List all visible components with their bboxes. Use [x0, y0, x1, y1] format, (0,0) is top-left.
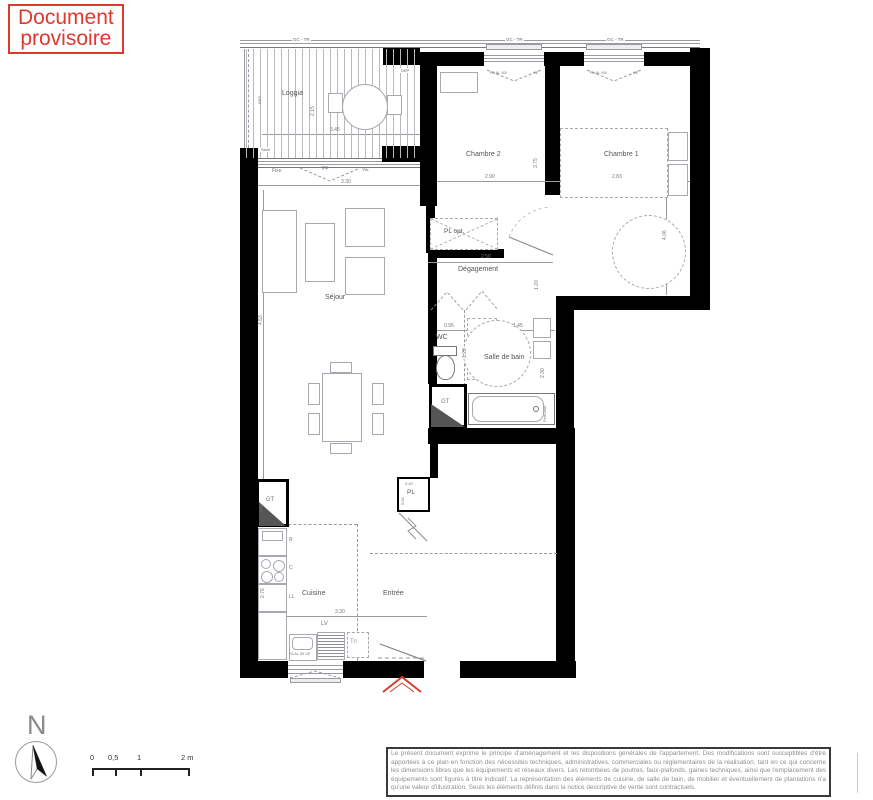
bay-pf-label: PF: [322, 166, 328, 172]
pare-bain-label: Pare-bain: [543, 406, 547, 422]
cooking-letter: C: [289, 565, 293, 571]
dim-pl-width: 0.40: [405, 481, 413, 486]
door-swing-arc: [509, 207, 551, 237]
scale-label-05: 0,5: [108, 753, 118, 762]
scale-tick: [140, 768, 142, 776]
fridge-letter: R: [289, 537, 293, 543]
dim-degagement-depth: 1.20: [534, 280, 540, 290]
dim-chambre2-depth: 3.75: [533, 158, 539, 168]
plan-linework: [0, 0, 873, 800]
dim-cuisine-width: 3.30: [335, 609, 345, 615]
compass-icon: [15, 741, 57, 783]
gt-hatch: [431, 404, 465, 427]
kitchen-window-label: FA AL 50 VE: [289, 652, 310, 656]
door-leaf-chambre1: [509, 237, 553, 255]
wc-door-swing: [431, 292, 463, 310]
railing-label: GC - TR: [606, 37, 625, 42]
gt-label: GT: [266, 497, 274, 503]
window-label-ve: VE: [533, 70, 538, 75]
gt-hatch: [259, 502, 286, 526]
dep-label: DEP: [400, 68, 410, 73]
dim-sdb-depth: 2.30: [540, 368, 546, 378]
door-leaf-pl: [399, 513, 427, 541]
room-label-degagement: Dégagement: [458, 266, 498, 273]
dim-loggia-depth: 2.15: [310, 106, 316, 116]
room-label-sejour: Séjour: [325, 294, 345, 301]
provisional-document-banner: Document provisoire: [8, 4, 124, 54]
window-label-ve: VE: [633, 70, 638, 75]
dim-gt-height: 0.80: [258, 504, 263, 512]
dim-wc-width: 0.95: [444, 323, 454, 329]
room-label-wc: WC: [436, 334, 448, 341]
disclaimer-text: Le présent document exprime le principe …: [386, 747, 831, 797]
railing-label: GC - TR: [505, 37, 524, 42]
railing-label: GC - TR: [292, 37, 311, 42]
banner-line1: Document: [18, 7, 114, 28]
scale-tick: [188, 768, 190, 776]
bep-label: BEP: [257, 96, 262, 104]
placard-opt-label: PL opt.: [444, 228, 464, 235]
tri-label: Tri: [350, 639, 357, 645]
dim-loggia-width: 3.45: [330, 127, 340, 133]
banner-line2: provisoire: [18, 28, 114, 49]
lv-label: LV: [321, 621, 328, 627]
seuil-label: Seuil: [260, 147, 271, 152]
room-label-sdb: Salle de bain: [484, 354, 524, 361]
entrance-marker-icon: [383, 677, 421, 692]
north-label: N: [27, 710, 47, 741]
room-label-cuisine: Cuisine: [302, 590, 325, 597]
room-label-entree: Entrée: [383, 590, 404, 597]
dim-sejour-depth: 4.53: [258, 315, 264, 325]
scale-label-0: 0: [90, 753, 94, 762]
pl-label: PL: [407, 489, 415, 496]
washer-letter: LL: [289, 594, 295, 600]
bay-swing: [300, 168, 360, 181]
scale-label-1: 1: [137, 753, 141, 762]
scale-tick: [92, 768, 94, 776]
floor-plan-sheet: Document provisoire GC - TR GC - TR GC -…: [0, 0, 873, 800]
bay-ve-label: VE: [362, 167, 369, 173]
kitchen-window-swing: [290, 671, 340, 678]
sdb-door-swing: [466, 291, 498, 310]
window-label: FA AL 50l: [490, 70, 507, 75]
dim-chambre2-width: 2.90: [485, 174, 495, 180]
dim-sdb-width: 1.45: [513, 323, 523, 329]
dim-pl-depth: 0.65: [400, 497, 405, 505]
room-label-chambre1: Chambre 1: [604, 151, 639, 158]
dim-chambre1-depth: 4.06: [662, 230, 668, 240]
scale-tick: [115, 768, 117, 776]
dim-degagement-width: 2.50: [481, 254, 491, 260]
dim-wc-depth: 1.28: [462, 348, 468, 358]
gt-label: GT: [441, 399, 449, 405]
dim-bay-width: 3.30: [341, 179, 351, 185]
bay-fixe-label: Fixe: [272, 168, 281, 174]
room-label-chambre2: Chambre 2: [466, 151, 501, 158]
scale-label-2m: 2 m: [181, 753, 194, 762]
window-label: FA AL 50l: [590, 70, 607, 75]
dim-chambre1-width: 2.83: [612, 174, 622, 180]
dim-cuisine-depth: 2.76: [260, 588, 266, 598]
room-label-loggia: Loggia: [282, 90, 303, 97]
